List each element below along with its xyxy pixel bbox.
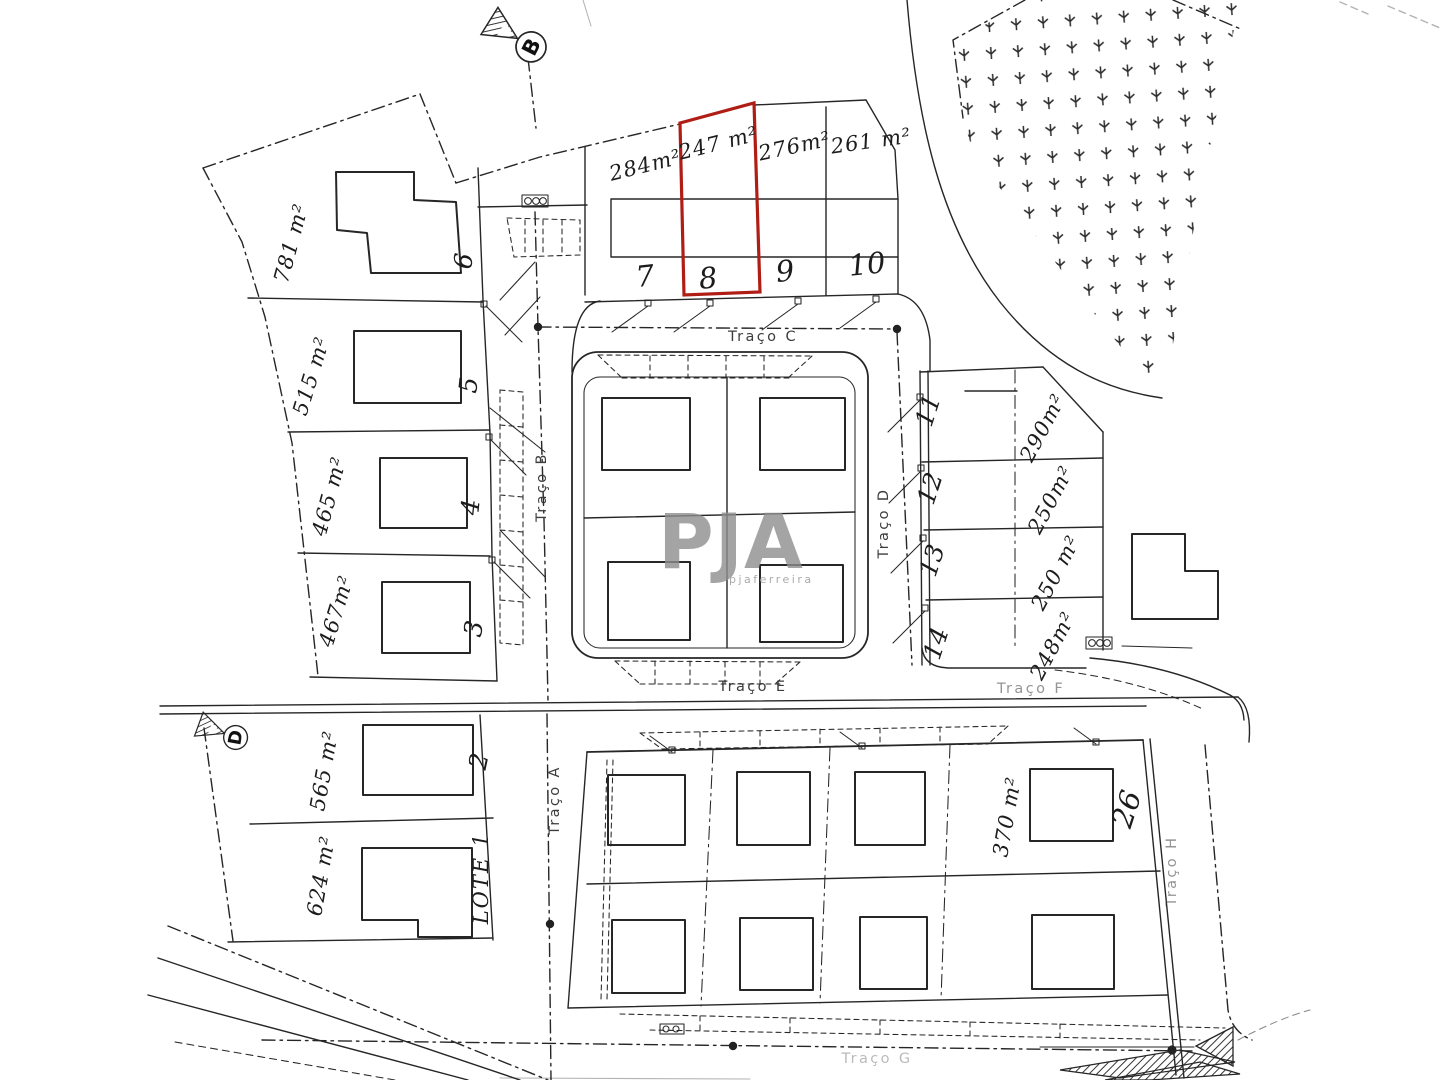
plot-14-area-label: 248m²	[1025, 608, 1081, 685]
plot-2-area-label: 565 m²	[305, 729, 343, 813]
plot-11-number: 11	[909, 391, 946, 430]
building-footprint	[608, 775, 685, 845]
building-footprint	[855, 772, 925, 845]
building-footprint-lote-1	[362, 848, 472, 937]
building-footprint-lot-6	[336, 172, 461, 273]
building-footprint-lot-4	[380, 458, 467, 528]
street-label-traco-d: Traço D	[876, 488, 892, 560]
orchard-area	[907, 0, 1243, 400]
building-footprint-east	[1132, 534, 1218, 619]
plot-8-number: 8	[697, 260, 719, 296]
building-footprint-lot-3	[382, 582, 470, 653]
plot-9-number: 9	[774, 253, 796, 289]
culvert-marker-road-f	[1086, 637, 1112, 649]
plot-8-area-label: 247 m²	[675, 122, 760, 165]
plot-10-number: 10	[847, 245, 887, 283]
cadastral-site-plan: 284m² 247 m² 276m² 261 m² 7 8 9 10 781 m…	[0, 0, 1441, 1080]
plot-3-area-label: 467m²	[314, 572, 359, 650]
hatched-arrow-decoration	[1040, 1010, 1310, 1080]
pja-watermark: PJA pjaferreira	[658, 497, 814, 586]
plot-13-number: 13	[913, 541, 950, 580]
plot-6-number: 6	[448, 252, 479, 271]
building-footprint-lot-5	[354, 331, 461, 403]
plot-11-area-label: 290m²	[1015, 390, 1071, 467]
orchard-pattern-fill	[955, 0, 1240, 400]
watermark-subtext: pjaferreira	[729, 573, 814, 586]
street-label-traco-h: Traço H	[1164, 836, 1180, 908]
site-plan-drawing: 284m² 247 m² 276m² 261 m² 7 8 9 10 781 m…	[0, 0, 1441, 1080]
culvert-marker-south	[660, 1024, 684, 1034]
south-block: Traço A 370 m² 26 Traço H	[262, 714, 1252, 1080]
building-footprint	[1032, 915, 1114, 989]
building-footprint	[612, 920, 685, 993]
building-footprint-lot-2	[363, 725, 473, 795]
building-footprint	[602, 398, 690, 470]
plot-26-area-label: 370 m²	[988, 775, 1026, 859]
street-label-traco-g: Traço G	[840, 1051, 912, 1067]
street-label-traco-b: Traço B	[534, 452, 550, 523]
lots-1-and-2: 565 m² 2 624 m² LOTE 1	[148, 715, 548, 1080]
building-footprint	[740, 918, 813, 990]
plot-7-area-label: 284m²	[606, 145, 684, 186]
plot-6-area-label: 781 m²	[269, 201, 313, 286]
plot-5-area-label: 515 m²	[288, 334, 335, 419]
street-label-traco-c: Traço C	[727, 329, 798, 345]
building-footprint	[1030, 769, 1113, 841]
plot-9-area-label: 276m²	[755, 127, 833, 166]
plot-5-number: 5	[453, 376, 484, 395]
building-footprint	[860, 917, 927, 989]
benchmark-d-marker: D	[194, 712, 251, 753]
building-footprint	[760, 398, 845, 470]
plot-14-number: 14	[917, 624, 954, 663]
plot-4-number: 4	[455, 498, 486, 518]
lote-1-number: LOTE 1	[469, 832, 493, 926]
plot-2-number: 2	[463, 750, 495, 773]
benchmark-b-marker: B	[481, 7, 552, 68]
lots-11-to-14: 11 12 13 14 290m² 250m² 250 m² 248m² Tra…	[888, 367, 1244, 720]
plot-26-number: 26	[1104, 786, 1148, 833]
plot-13-area-label: 250 m²	[1026, 531, 1086, 615]
lots-3-to-6: 781 m² 6 515 m² 5 465 m² 4 467m² 3	[248, 168, 530, 681]
building-footprint	[737, 772, 810, 845]
plot-4-area-label: 465 m²	[307, 454, 351, 540]
lote-1-area-label: 624 m²	[302, 834, 340, 918]
plot-3-number: 3	[458, 618, 489, 639]
street-label-traco-a: Traço A	[547, 765, 563, 836]
plot-7-number: 7	[634, 258, 656, 294]
street-label-traco-e: Traço E	[718, 679, 788, 695]
street-label-traco-f: Traço F	[996, 681, 1065, 697]
plot-10-area-label: 261 m²	[828, 124, 913, 159]
